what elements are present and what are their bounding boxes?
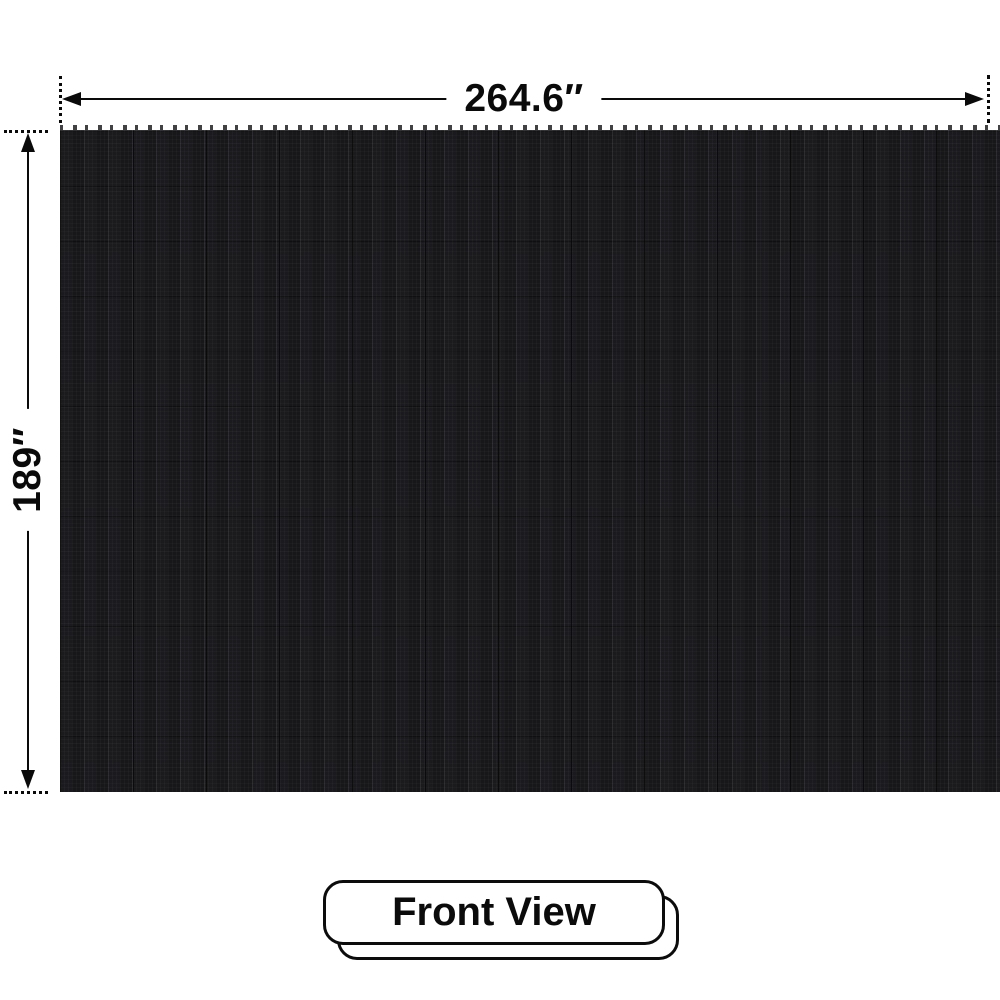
led-panel-front-view — [60, 130, 1000, 792]
arrow-down-icon — [21, 770, 35, 789]
arrow-right-icon — [965, 92, 984, 106]
width-extension-line-right — [987, 75, 990, 123]
front-view-button[interactable]: Front View — [323, 880, 665, 945]
width-dimension-label: 264.6″ — [446, 77, 601, 121]
arrow-left-icon — [62, 92, 81, 106]
arrow-up-icon — [21, 133, 35, 152]
height-extension-line-bottom — [4, 791, 48, 794]
diagram-canvas: 264.6″ 189″ Front View — [0, 0, 1000, 1000]
height-dimension-label: 189″ — [6, 409, 50, 531]
